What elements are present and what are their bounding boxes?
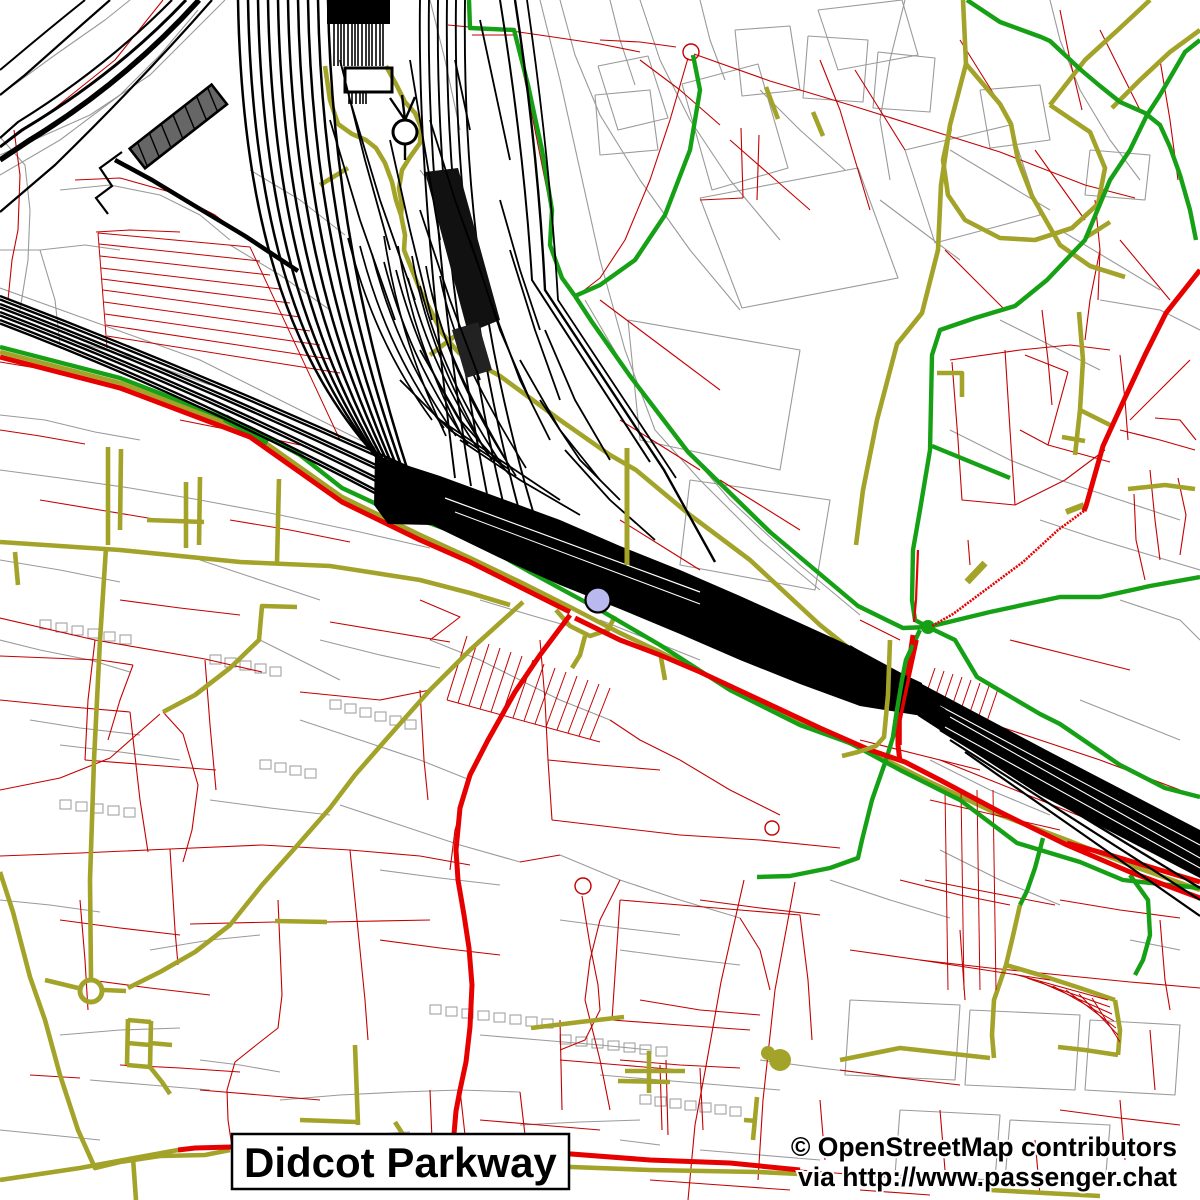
svg-text:via http://www.passenger.chat: via http://www.passenger.chat [798, 1162, 1177, 1192]
svg-text:Didcot Parkway: Didcot Parkway [244, 1139, 557, 1186]
svg-text:© OpenStreetMap contributors: © OpenStreetMap contributors [791, 1132, 1177, 1162]
